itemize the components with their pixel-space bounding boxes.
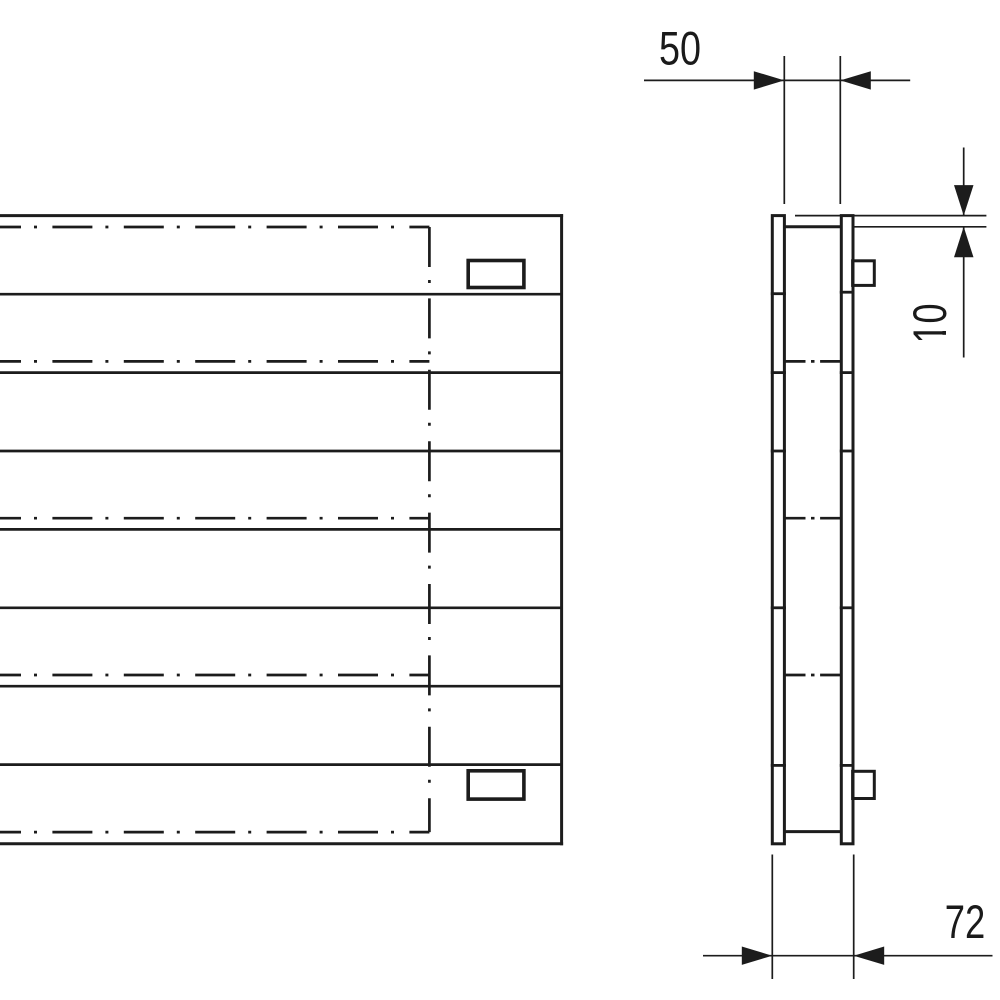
svg-text:72: 72 bbox=[945, 895, 986, 948]
svg-text:50: 50 bbox=[659, 22, 701, 75]
svg-text:10: 10 bbox=[903, 304, 956, 344]
